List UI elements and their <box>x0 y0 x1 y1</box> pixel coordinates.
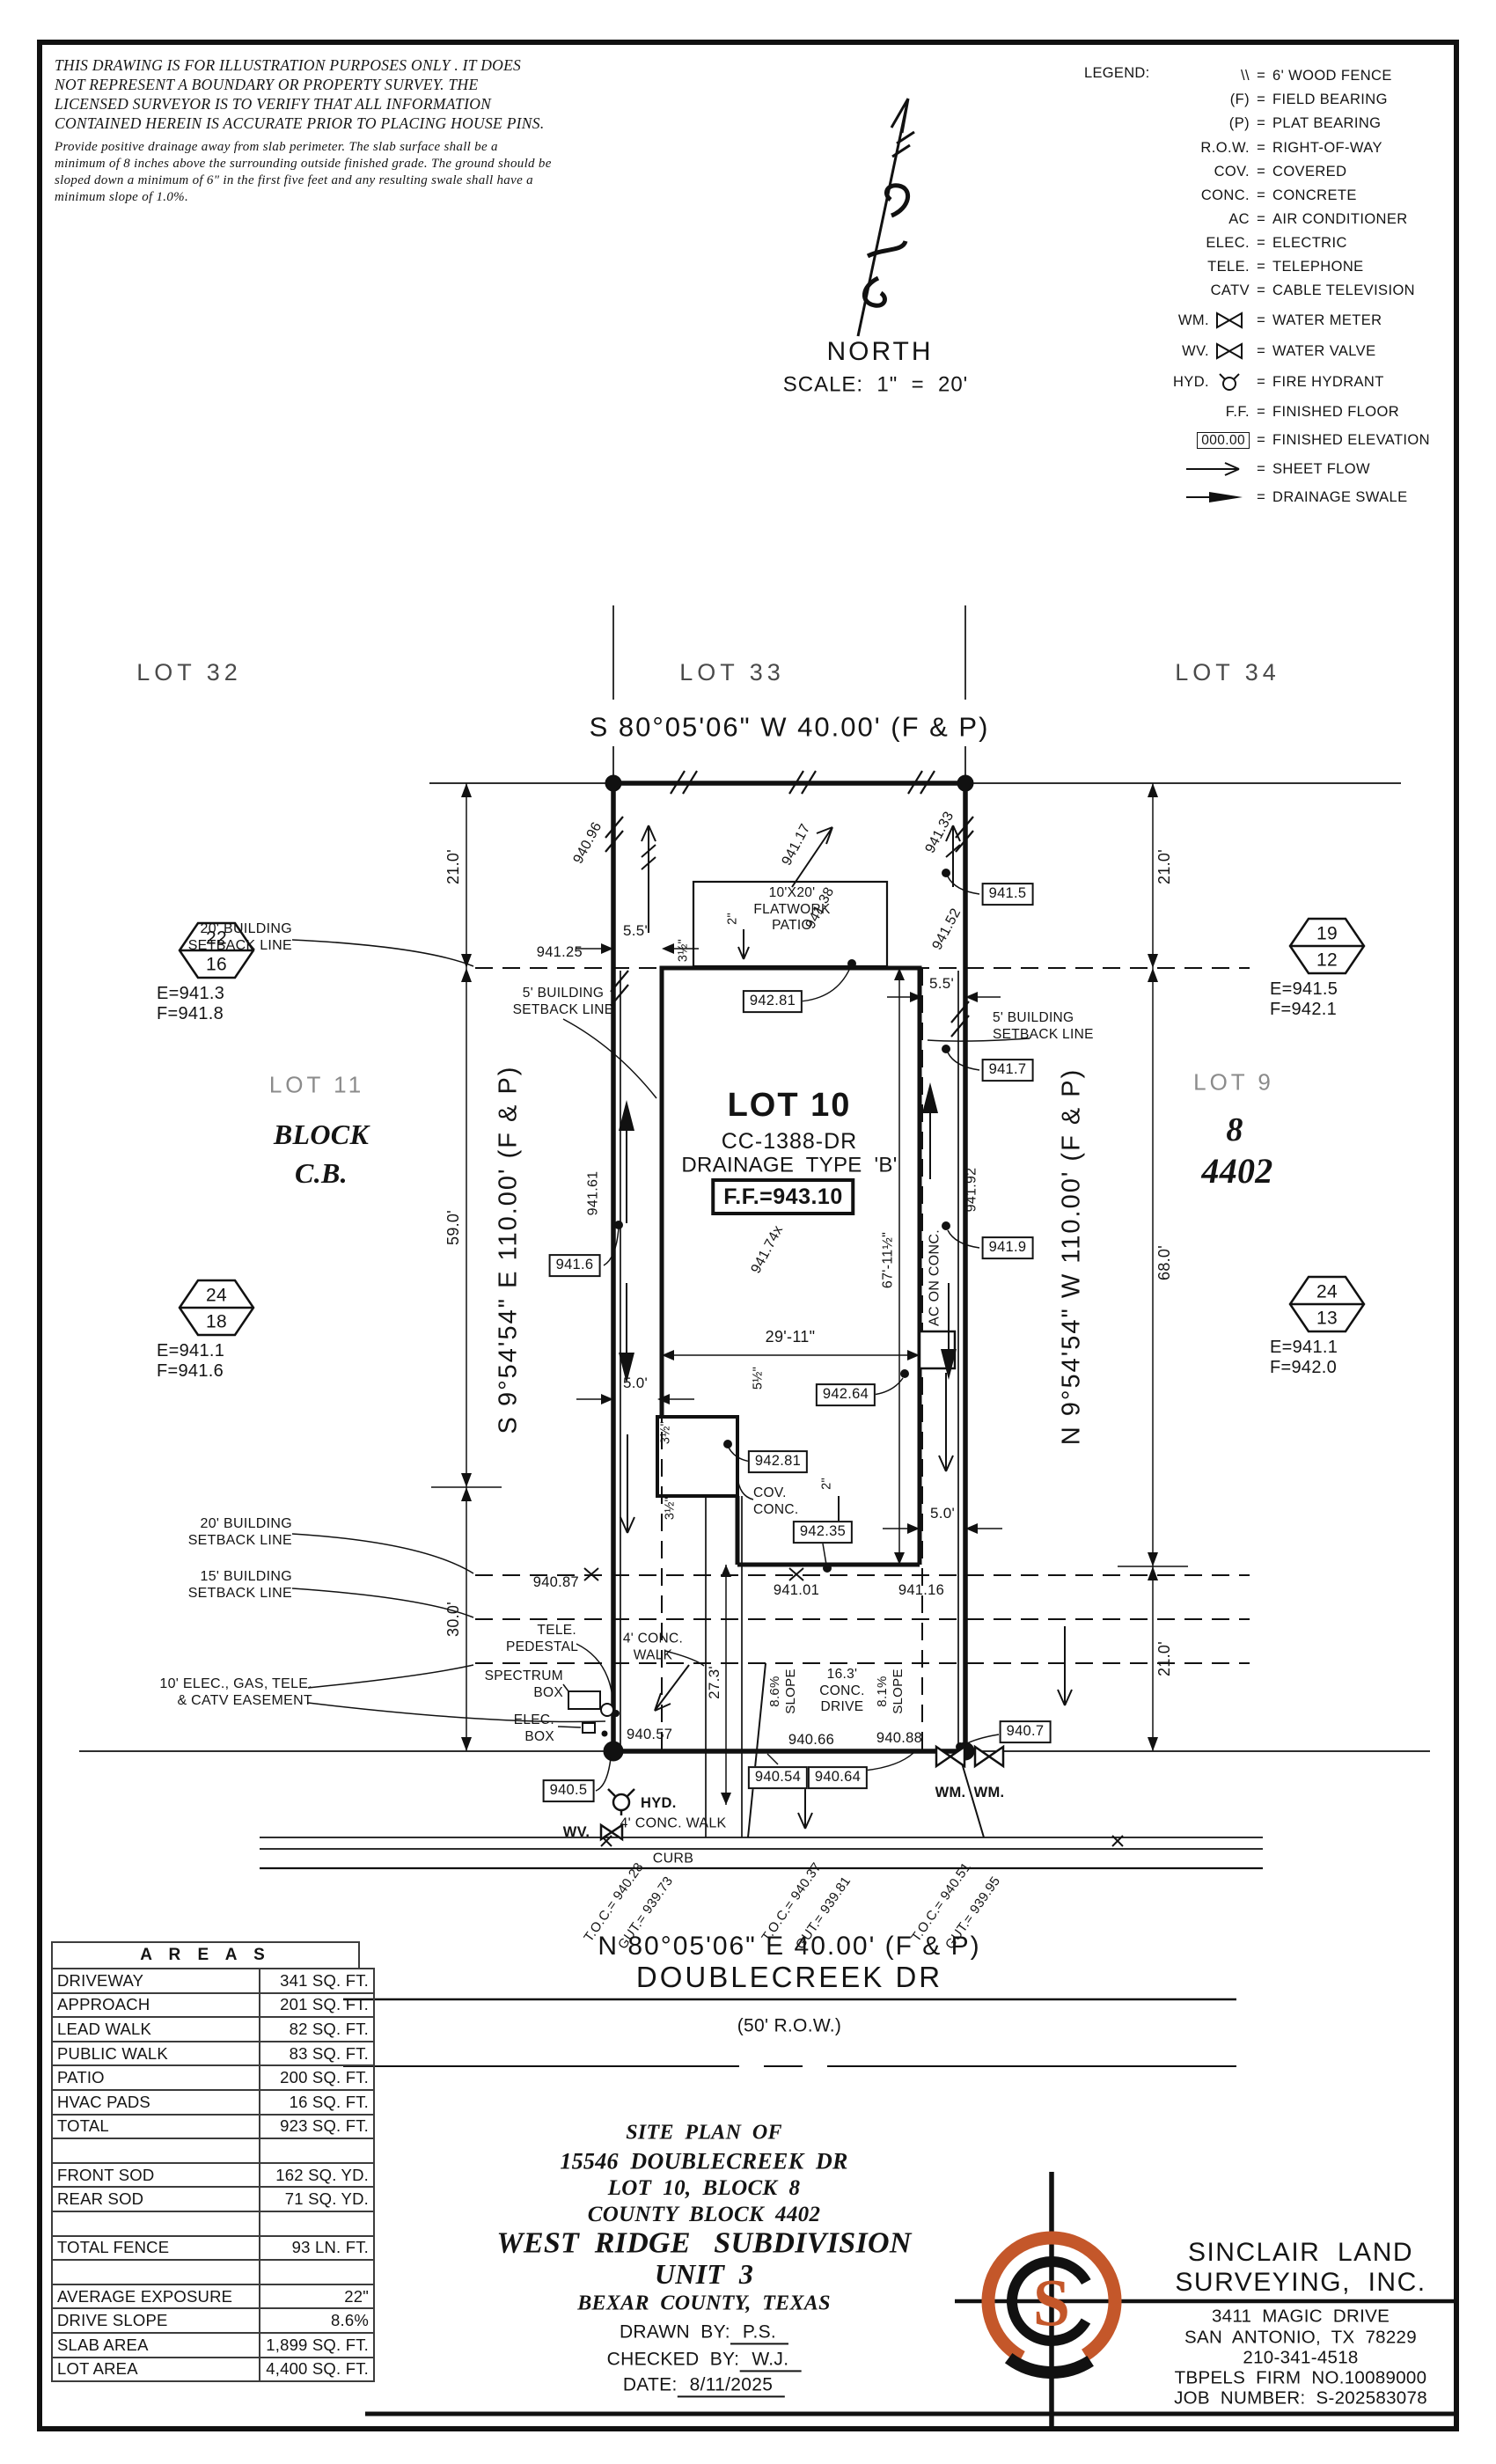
drawn-by-row: DRAWN BY:P.S. <box>620 2321 788 2343</box>
drainage-swale-icon <box>1183 489 1250 505</box>
boxed-elevation: 940.7 <box>1000 1720 1052 1743</box>
dim-3-5in: 3½" <box>663 1497 678 1520</box>
street-name: DOUBLECREEK DR <box>636 1960 942 1995</box>
wm-label: WM. <box>974 1785 1005 1802</box>
wv-label: WV. <box>563 1824 590 1842</box>
left-bearing: S 9°54'54" E 110.00' (F & P) <box>494 1066 524 1434</box>
legend-row: F.F.=FINISHED FLOOR <box>1144 401 1399 422</box>
spot-elevation: 941.01 <box>774 1582 819 1600</box>
benchmark-bottom: 16 <box>206 953 227 975</box>
legend-row: R.O.W.=RIGHT-OF-WAY <box>1144 137 1382 158</box>
fence-symbol: \\ <box>1144 68 1250 84</box>
title-address: 15546 DOUBLECREEK DR <box>560 2147 847 2174</box>
benchmark-top: 22 <box>206 927 227 949</box>
lot-32-label: LOT 32 <box>136 658 242 686</box>
legend-row-fence: \\ = 6' WOOD FENCE <box>1144 65 1392 86</box>
lot-11-label: LOT 11 <box>269 1071 364 1098</box>
title-county-state: BEXAR COUNTY, TEXAS <box>577 2292 831 2317</box>
checked-by-value: W.J. <box>739 2349 801 2372</box>
legend-row: ELEC.=ELECTRIC <box>1144 232 1347 253</box>
surveyor-phone: 210-341-4518 <box>1243 2348 1358 2370</box>
benchmark-existing: E=941.1 <box>1270 1337 1338 1358</box>
areas-table-title: A R E A S <box>51 1941 360 1969</box>
table-row: TOTAL FENCE93 LN. FT. <box>52 2236 374 2261</box>
dim-21-left: 21.0' <box>444 849 464 884</box>
boxed-elevation: 942.35 <box>793 1521 853 1544</box>
dim-67-11: 67'-11½" <box>879 1232 896 1288</box>
right-of-way-label: (50' R.O.W.) <box>737 2014 841 2036</box>
boxed-elevation: 941.5 <box>982 883 1034 906</box>
public-walk <box>260 1837 1263 1849</box>
table-row: DRIVEWAY341 SQ. FT. <box>52 1969 374 1993</box>
dim-29-11: 29'-11" <box>766 1328 816 1347</box>
benchmark-finished: F=941.8 <box>157 1003 224 1024</box>
dim-5-0-left: 5.0' <box>623 1375 648 1392</box>
electric-box-icon <box>583 1723 595 1733</box>
legend-row: TELE.=TELEPHONE <box>1144 256 1364 277</box>
legend-row-drainage-swale: = DRAINAGE SWALE <box>1144 487 1408 508</box>
surveyor-name-line2: SURVEYING, INC. <box>1175 2267 1426 2299</box>
table-row: REAR SOD71 SQ. YD. <box>52 2187 374 2211</box>
dim-5-5-left: 5.5' <box>623 922 648 940</box>
setback-15-front-label: 15' BUILDING SETBACK LINE <box>158 1568 292 1602</box>
ac-on-conc-label: AC ON CONC. <box>926 1229 942 1326</box>
dim-21-right-top: 21.0' <box>1155 849 1175 884</box>
benchmark-top: 19 <box>1316 922 1338 944</box>
legend-row: (F)=FIELD BEARING <box>1144 89 1388 110</box>
site-plan-sheet: THIS DRAWING IS FOR ILLUSTRATION PURPOSE… <box>0 0 1496 2464</box>
dim-2in: 2" <box>819 1478 834 1490</box>
spot-elevation: 940.57 <box>627 1727 672 1744</box>
areas-table: DRIVEWAY341 SQ. FT. APPROACH201 SQ. FT. … <box>51 1968 375 2382</box>
legend-title: LEGEND: <box>1084 65 1150 83</box>
spot-elevation: 941.25 <box>524 944 583 962</box>
drainage-note-line: minimum slope of 1.0%. <box>55 189 188 205</box>
surveyor-address1: 3411 MAGIC DRIVE <box>1212 2306 1390 2328</box>
cc-number: CC-1388-DR <box>722 1128 857 1155</box>
wm-label: WM. <box>935 1785 966 1802</box>
benchmark-bottom: 13 <box>1316 1307 1338 1329</box>
right-bearing: N 9°54'54" W 110.00' (F & P) <box>1057 1068 1088 1446</box>
table-row: LOT AREA4,400 SQ. FT. <box>52 2358 374 2382</box>
surveyor-name-line1: SINCLAIR LAND <box>1188 2237 1413 2269</box>
block-number: 8 <box>1226 1111 1243 1151</box>
date-value: 8/11/2025 <box>678 2374 786 2397</box>
county-block-number: 4402 <box>1201 1150 1272 1192</box>
benchmark-existing: E=941.3 <box>157 983 224 1004</box>
table-row <box>52 2260 374 2284</box>
legend-row-water-meter: WM. = WATER METER <box>1144 310 1382 331</box>
benchmark-finished: F=942.0 <box>1270 1357 1337 1378</box>
setback-5-right-label: 5' BUILDING SETBACK LINE <box>993 1010 1094 1043</box>
benchmark-top: 24 <box>206 1284 227 1306</box>
legend-row: COV.=COVERED <box>1144 161 1346 182</box>
table-row <box>52 2211 374 2236</box>
telephone-pedestal-icon <box>601 1704 613 1716</box>
legend-row-sheet-flow: = SHEET FLOW <box>1144 458 1370 480</box>
spot-elevation: 941.61 <box>584 1171 601 1216</box>
logo-s-letter: S <box>1033 2263 1071 2343</box>
table-row: SLAB AREA1,899 SQ. FT. <box>52 2333 374 2358</box>
finished-elevation-box: 000.00 <box>1197 432 1250 449</box>
block-cb-label: C.B. <box>295 1156 348 1190</box>
disclaimer-line: LICENSED SURVEYOR IS TO VERIFY THAT ALL … <box>55 95 491 114</box>
benchmark-existing: E=941.5 <box>1270 979 1338 1000</box>
dim-5-5in: 5½" <box>751 1367 766 1390</box>
water-valve-icon <box>1209 341 1250 361</box>
spectrum-box-label: SPECTRUM BOX <box>475 1668 563 1701</box>
surveyor-firm-number: TBPELS FIRM NO.10089000 <box>1175 2368 1427 2390</box>
curb-label: CURB <box>653 1850 694 1866</box>
lot-33-label: LOT 33 <box>679 658 785 686</box>
boxed-elevation: 942.81 <box>743 990 803 1013</box>
table-row: DRIVE SLOPE8.6% <box>52 2308 374 2333</box>
table-row: APPROACH201 SQ. FT. <box>52 1993 374 2018</box>
boxed-elevation: 942.64 <box>816 1383 876 1406</box>
dim-2in-patio: 2" <box>725 913 740 925</box>
boxed-elevation: 942.81 <box>748 1450 808 1473</box>
benchmark-finished: F=942.1 <box>1270 999 1337 1020</box>
setback-20-front-label: 20' BUILDING SETBACK LINE <box>158 1515 292 1549</box>
dim-68: 68.0' <box>1155 1245 1175 1280</box>
slope-86-label: 8.6% SLOPE <box>767 1668 799 1714</box>
table-row: TOTAL923 SQ. FT. <box>52 2115 374 2139</box>
lot-10-label: LOT 10 <box>728 1086 852 1126</box>
dim-30: 30.0' <box>444 1602 464 1637</box>
block-label: BLOCK <box>274 1118 369 1151</box>
table-row: PATIO200 SQ. FT. <box>52 2065 374 2090</box>
lot-34-label: LOT 34 <box>1175 658 1280 686</box>
easement-label: 10' ELEC., GAS, TELE. & CATV EASEMENT <box>136 1676 312 1709</box>
boxed-elevation: 940.64 <box>808 1766 868 1789</box>
north-arrow <box>858 99 914 336</box>
legend-row-water-valve: WV. = WATER VALVE <box>1144 341 1375 362</box>
title-lot-block: LOT 10, BLOCK 8 <box>608 2175 801 2202</box>
dim-5-5-right: 5.5' <box>929 975 954 993</box>
checked-by-row: CHECKED BY:W.J. <box>607 2348 802 2370</box>
job-number: JOB NUMBER: S-202583078 <box>1174 2388 1427 2410</box>
public-walk-label: 4' CONC. WALK <box>620 1815 726 1831</box>
drainage-note-line: minimum of 8 inches above the surroundin… <box>55 156 552 172</box>
boxed-elevation: 941.9 <box>982 1236 1034 1259</box>
disclaimer-line: NOT REPRESENT A BOUNDARY OR PROPERTY SUR… <box>55 76 478 94</box>
title-unit: UNIT 3 <box>655 2257 753 2291</box>
table-row: FRONT SOD162 SQ. YD. <box>52 2163 374 2188</box>
drainage-note-line: sloped down a minimum of 6" in the first… <box>55 172 533 188</box>
tele-pedestal-label: TELE. PEDESTAL <box>506 1623 576 1655</box>
dim-5-0-right: 5.0' <box>930 1505 955 1522</box>
spectrum-box-icon <box>568 1691 600 1709</box>
setback-lines <box>475 968 1250 1751</box>
spot-elevation: 940.88 <box>876 1730 922 1748</box>
title-site-plan-of: SITE PLAN OF <box>626 2121 782 2146</box>
surveyor-address2: SAN ANTONIO, TX 78229 <box>1184 2328 1417 2350</box>
date-row: DATE:8/11/2025 <box>623 2373 785 2395</box>
boxed-elevation: 940.54 <box>748 1766 808 1789</box>
boxed-elevation: 941.6 <box>549 1254 601 1277</box>
legend-row: CATV=CABLE TELEVISION <box>1144 280 1415 301</box>
dim-3-5in: 3½" <box>676 939 691 962</box>
legend-row-finished-elevation: 000.00 = FINISHED ELEVATION <box>1144 429 1430 451</box>
hyd-label: HYD. <box>641 1795 677 1813</box>
table-row <box>52 2138 374 2163</box>
legend-row: (P)=PLAT BEARING <box>1144 113 1381 134</box>
drawn-by-value: P.S. <box>730 2321 788 2344</box>
drainage-type-label: DRAINAGE TYPE 'B' <box>681 1154 897 1179</box>
slope-81-label: 8.1% SLOPE <box>875 1668 906 1714</box>
setback-5-left-label: 5' BUILDING SETBACK LINE <box>513 986 614 1018</box>
spot-elevation: 940.87 <box>519 1574 579 1592</box>
table-row: HVAC PADS16 SQ. FT. <box>52 2090 374 2115</box>
water-meter-icon <box>1209 311 1250 330</box>
benchmark-bottom: 12 <box>1316 949 1338 971</box>
legend-row: AC=AIR CONDITIONER <box>1144 209 1408 230</box>
north-label: NORTH <box>826 336 933 368</box>
spot-elevation: 941.92 <box>963 1168 979 1213</box>
spot-elevation: 940.66 <box>788 1732 834 1749</box>
benchmark-bottom: 18 <box>206 1310 227 1332</box>
table-row: LEAD WALK82 SQ. FT. <box>52 2017 374 2042</box>
elec-box-label: ELEC. BOX <box>493 1712 554 1745</box>
table-row: AVERAGE EXPOSURE22" <box>52 2284 374 2309</box>
drainage-note-line: Provide positive drainage away from slab… <box>55 139 498 155</box>
table-row: PUBLIC WALK83 SQ. FT. <box>52 2042 374 2066</box>
fire-hydrant-icon <box>608 1789 634 1815</box>
lot-9-label: LOT 9 <box>1193 1068 1274 1096</box>
benchmark-existing: E=941.1 <box>157 1340 224 1361</box>
benchmark-finished: F=941.6 <box>157 1360 224 1382</box>
finished-floor-box: F.F.=943.10 <box>711 1178 854 1215</box>
disclaimer-line: CONTAINED HEREIN IS ACCURATE PRIOR TO PL… <box>55 114 545 133</box>
covered-concrete-label: COV. CONC. <box>753 1485 798 1518</box>
title-county-block: COUNTY BLOCK 4402 <box>588 2202 821 2228</box>
boxed-elevation: 940.5 <box>543 1779 595 1802</box>
fire-hydrant-icon <box>1209 371 1250 392</box>
spot-elevation: 941.16 <box>898 1582 944 1600</box>
dim-27-3: 27.3' <box>706 1666 723 1699</box>
conc-drive-label: 16.3' CONC. DRIVE <box>819 1667 864 1716</box>
benchmark-top: 24 <box>1316 1280 1338 1302</box>
legend-row: CONC.=CONCRETE <box>1144 185 1357 206</box>
water-meter-icon <box>975 1747 1003 1766</box>
dim-59: 59.0' <box>444 1210 464 1245</box>
boxed-elevation: 941.7 <box>982 1059 1034 1082</box>
rear-bearing: S 80°05'06" W 40.00' (F & P) <box>590 710 990 743</box>
sheet-flow-icon <box>1183 461 1250 477</box>
scale-label: SCALE: 1" = 20' <box>783 373 969 399</box>
disclaimer-line: THIS DRAWING IS FOR ILLUSTRATION PURPOSE… <box>55 56 521 75</box>
dim-3-5in: 3½" <box>658 1421 673 1444</box>
dim-21-right-bottom: 21.0' <box>1155 1641 1175 1676</box>
lead-walk-label: 4' CONC. WALK <box>623 1631 683 1663</box>
legend-row-hydrant: HYD. = FIRE HYDRANT <box>1144 371 1384 392</box>
